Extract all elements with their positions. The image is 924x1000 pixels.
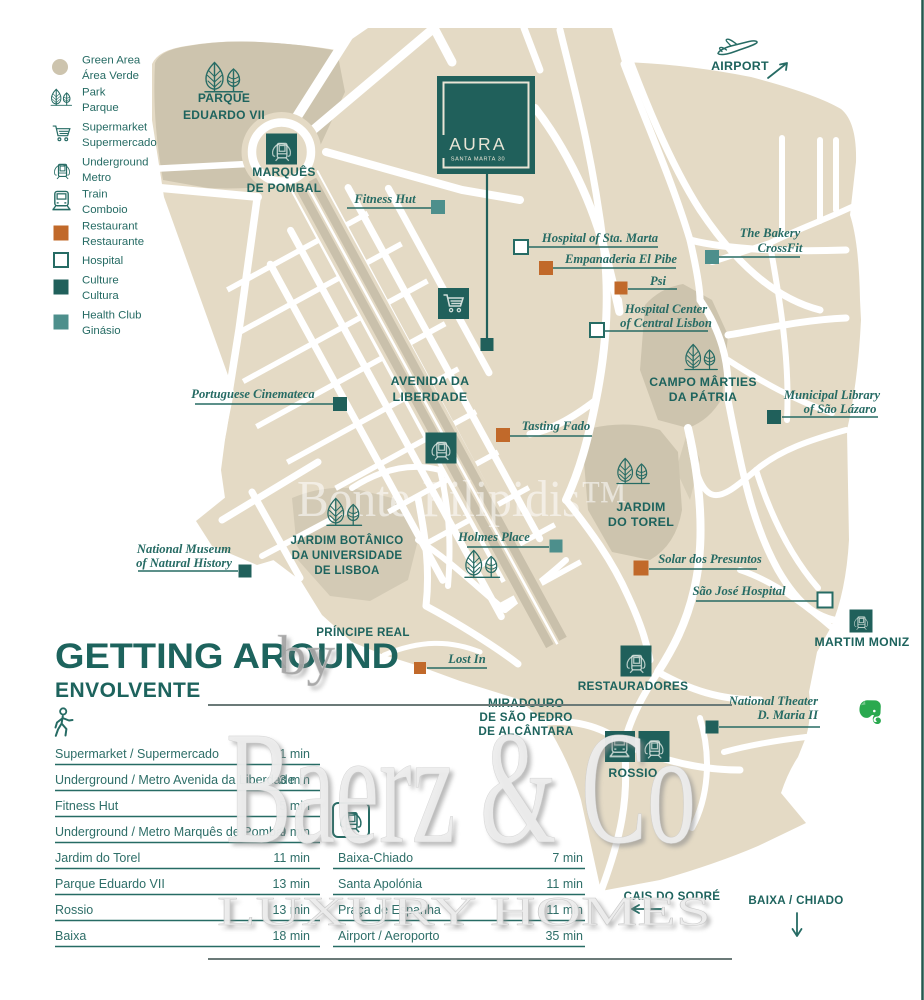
svg-text:Cultura: Cultura <box>82 290 119 302</box>
svg-text:Supermercado: Supermercado <box>82 137 157 149</box>
svg-text:Underground: Underground <box>82 157 149 169</box>
svg-text:Holmes Place: Holmes Place <box>457 530 530 544</box>
svg-text:DE POMBAL: DE POMBAL <box>247 181 322 195</box>
svg-text:Fitness Hut: Fitness Hut <box>55 799 119 813</box>
svg-text:Fitness Hut: Fitness Hut <box>353 192 416 206</box>
svg-text:DO TOREL: DO TOREL <box>608 515 674 529</box>
svg-text:BAIXA / CHIADO: BAIXA / CHIADO <box>748 894 843 907</box>
svg-text:National Museum: National Museum <box>136 542 231 556</box>
svg-text:AURA: AURA <box>449 134 506 154</box>
svg-text:by: by <box>278 625 335 687</box>
svg-text:of São Lázaro: of São Lázaro <box>804 402 877 416</box>
svg-text:of Central Lisbon: of Central Lisbon <box>620 316 712 330</box>
svg-text:DA PÁTRIA: DA PÁTRIA <box>669 389 738 404</box>
svg-text:MARQUÊS: MARQUÊS <box>252 164 315 179</box>
svg-text:DE LISBOA: DE LISBOA <box>314 565 379 577</box>
svg-text:RESTAURADORES: RESTAURADORES <box>578 679 689 693</box>
svg-text:Restaurante: Restaurante <box>82 236 144 248</box>
svg-text:AVENIDA DA: AVENIDA DA <box>391 374 470 388</box>
svg-text:Tasting Fado: Tasting Fado <box>522 419 590 433</box>
svg-text:Portuguese Cinemateca: Portuguese Cinemateca <box>191 387 314 401</box>
svg-text:Culture: Culture <box>82 275 119 287</box>
svg-text:The Bakery: The Bakery <box>740 226 801 240</box>
svg-text:Parque: Parque <box>82 102 119 114</box>
svg-text:Área Verde: Área Verde <box>82 69 139 82</box>
svg-text:Supermarket: Supermarket <box>82 122 148 134</box>
svg-text:Health Club: Health Club <box>82 310 142 322</box>
svg-text:Municipal Library: Municipal Library <box>783 388 881 402</box>
svg-text:LUXURY HOMES: LUXURY HOMES <box>217 888 711 934</box>
svg-text:Lost In: Lost In <box>447 652 485 666</box>
svg-text:PARQUE: PARQUE <box>198 91 250 105</box>
svg-text:Comboio: Comboio <box>82 204 128 216</box>
svg-text:AIRPORT: AIRPORT <box>711 59 769 73</box>
svg-text:D. Maria II: D. Maria II <box>756 708 819 722</box>
svg-text:SANTA MARTA 30: SANTA MARTA 30 <box>451 157 505 163</box>
svg-text:DA UNIVERSIDADE: DA UNIVERSIDADE <box>292 550 403 562</box>
svg-text:Rossio: Rossio <box>55 903 93 917</box>
svg-text:GETTING AROUND: GETTING AROUND <box>55 637 399 676</box>
svg-text:Green Area: Green Area <box>82 55 141 67</box>
svg-text:Train: Train <box>82 189 108 201</box>
svg-text:Supermarket / Supermercado: Supermarket / Supermercado <box>55 747 219 761</box>
svg-text:ENVOLVENTE: ENVOLVENTE <box>55 679 201 702</box>
svg-text:Restaurant: Restaurant <box>82 221 139 233</box>
svg-text:Hospital of Sta. Marta: Hospital of Sta. Marta <box>541 231 658 245</box>
svg-text:Baerz & Co: Baerz & Co <box>226 699 696 878</box>
svg-text:Parque Eduardo VII: Parque Eduardo VII <box>55 877 165 891</box>
svg-text:Baixa: Baixa <box>55 929 86 943</box>
svg-text:JARDIM BOTÂNICO: JARDIM BOTÂNICO <box>290 534 403 547</box>
svg-text:MARTIM MONIZ: MARTIM MONIZ <box>815 635 910 649</box>
svg-text:Empanaderia El Pibe: Empanaderia El Pibe <box>564 252 677 266</box>
svg-text:Psi: Psi <box>650 274 667 288</box>
svg-text:CAMPO MÂRTIES: CAMPO MÂRTIES <box>649 374 757 389</box>
svg-text:Hospital Center: Hospital Center <box>624 302 707 316</box>
svg-text:National Theater: National Theater <box>728 694 818 708</box>
svg-text:Ginásio: Ginásio <box>82 325 121 337</box>
svg-text:of Natural History: of Natural History <box>136 556 232 570</box>
svg-text:Solar dos Presuntos: Solar dos Presuntos <box>658 552 762 566</box>
svg-text:Jardim do Torel: Jardim do Torel <box>55 851 140 865</box>
svg-text:São José Hospital: São José Hospital <box>692 584 786 598</box>
svg-text:Hospital: Hospital <box>82 255 123 267</box>
svg-text:Bonte Filipidis™: Bonte Filipidis™ <box>297 471 627 528</box>
svg-text:Metro: Metro <box>82 172 111 184</box>
svg-text:Park: Park <box>82 87 106 99</box>
svg-text:LIBERDADE: LIBERDADE <box>393 390 468 404</box>
svg-text:CrossFit: CrossFit <box>758 241 803 255</box>
svg-text:EDUARDO VII: EDUARDO VII <box>183 108 265 122</box>
svg-text:JARDIM: JARDIM <box>616 500 665 514</box>
